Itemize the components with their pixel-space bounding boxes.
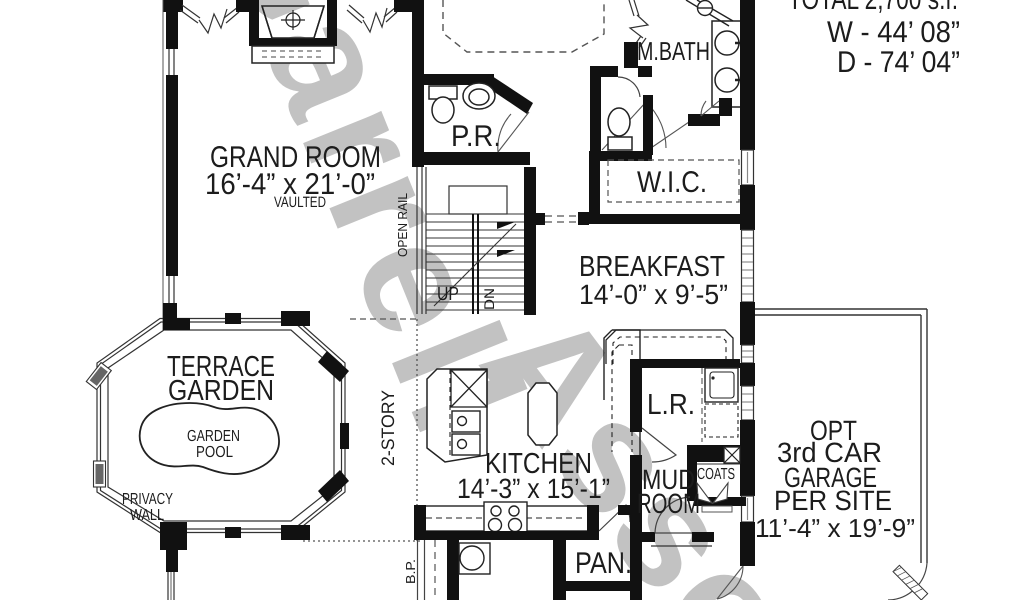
svg-text:D - 74’ 04”: D - 74’ 04” — [837, 46, 960, 79]
svg-text:DN: DN — [481, 288, 497, 310]
svg-text:TOTAL 2,700 s.f.: TOTAL 2,700 s.f. — [788, 0, 958, 16]
svg-text:PAN.: PAN. — [575, 547, 632, 580]
svg-text:GARDEN: GARDEN — [187, 428, 240, 445]
svg-text:W - 44’ 08”: W - 44’ 08” — [827, 16, 960, 49]
svg-text:VAULTED: VAULTED — [274, 194, 326, 211]
svg-text:COATS: COATS — [697, 466, 735, 483]
svg-text:GARDEN: GARDEN — [168, 375, 274, 407]
svg-text:P.R.: P.R. — [451, 120, 501, 153]
svg-text:14’-0” x 9’-5”: 14’-0” x 9’-5” — [579, 279, 728, 310]
svg-text:14’-3” x 15’-1”: 14’-3” x 15’-1” — [457, 473, 610, 504]
svg-text:W.I.C.: W.I.C. — [637, 166, 707, 199]
svg-text:ROOM: ROOM — [637, 488, 700, 519]
svg-text:POOL: POOL — [196, 444, 233, 461]
svg-text:PRIVACY: PRIVACY — [122, 491, 173, 508]
svg-text:L.R.: L.R. — [647, 389, 695, 421]
svg-text:PER SITE: PER SITE — [774, 485, 892, 516]
svg-text:2-STORY: 2-STORY — [378, 390, 398, 466]
svg-text:11’-4” x 19’-9”: 11’-4” x 19’-9” — [755, 513, 915, 543]
svg-text:WALL: WALL — [130, 507, 164, 524]
svg-text:OPEN RAIL: OPEN RAIL — [395, 193, 410, 257]
svg-text:UP: UP — [437, 284, 459, 305]
svg-text:M.BATH: M.BATH — [637, 36, 710, 66]
svg-text:B.P.: B.P. — [403, 559, 418, 584]
